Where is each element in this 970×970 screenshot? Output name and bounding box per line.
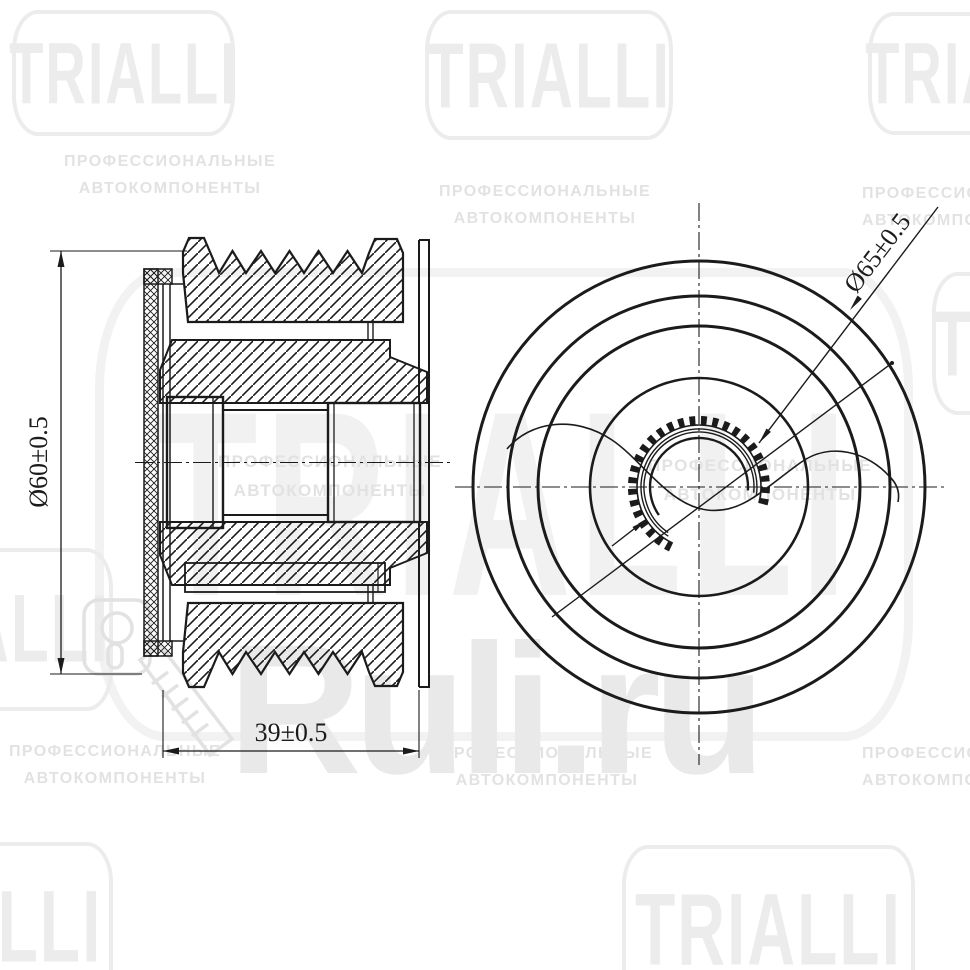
knurled-cap-top-bend [144, 269, 172, 284]
reference-line-end-dot [890, 361, 894, 365]
dimension-label-width-39: 39±0.5 [255, 718, 328, 747]
clutch-ring-lower-hatched [160, 522, 427, 585]
diagonal-reference-line [552, 363, 892, 617]
dimension-label-diameter-65: Ø65±0.5 [838, 208, 916, 298]
technical-drawing: Ø60±0.5 39±0.5 [0, 0, 970, 970]
rim-bottom-hatched [183, 603, 403, 687]
dimension-width-39: 39±0.5 [163, 690, 419, 758]
clutch-ring-upper-hatched [160, 340, 427, 403]
left-view-cross-section: Ø60±0.5 39±0.5 [24, 238, 450, 758]
rotation-direction-arrow [612, 520, 646, 546]
right-view-front: Ø65±0.5 [455, 203, 948, 765]
knurled-cap-strip [144, 269, 158, 656]
catalog-drawing-page: TRIALLI TRIALLI TRIALLI TRIALLI TRIALLI … [0, 0, 970, 970]
knurled-cap-bottom-bend [144, 641, 172, 656]
dimension-label-diameter-60: Ø60±0.5 [24, 416, 53, 508]
rim-top-hatched [183, 238, 403, 322]
